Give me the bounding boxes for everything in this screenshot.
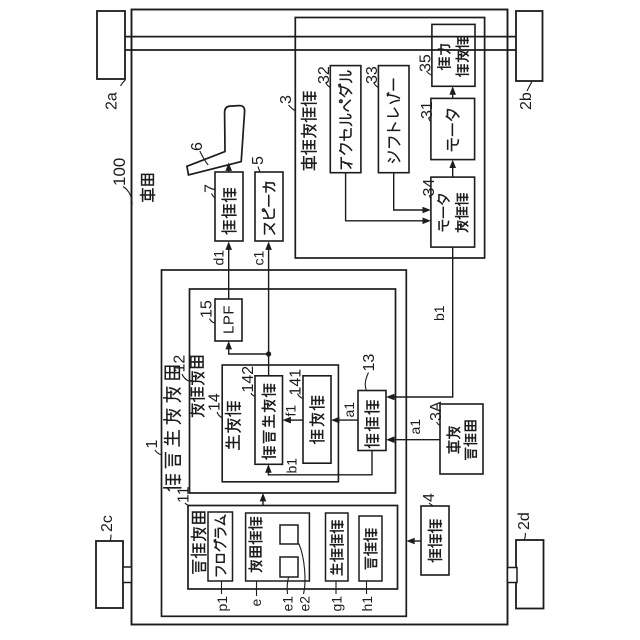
svg-text:3: 3: [278, 95, 295, 104]
svg-text:13: 13: [361, 354, 378, 372]
svg-text:15: 15: [199, 300, 216, 318]
svg-text:141: 141: [288, 369, 305, 396]
svg-text:12: 12: [172, 355, 189, 373]
svg-text:d1: d1: [211, 250, 227, 266]
svg-text:4: 4: [421, 493, 438, 502]
svg-text:142: 142: [240, 366, 257, 393]
svg-text:a1: a1: [341, 402, 357, 418]
svg-text:b1: b1: [431, 305, 447, 321]
svg-text:7: 7: [203, 184, 220, 193]
svg-text:a1: a1: [407, 419, 423, 435]
svg-text:34: 34: [421, 179, 438, 197]
svg-text:14: 14: [207, 393, 224, 411]
svg-text:e1: e1: [280, 596, 296, 612]
svg-text:2a: 2a: [104, 92, 121, 110]
svg-text:2c: 2c: [99, 515, 116, 532]
svg-text:c1: c1: [251, 251, 267, 266]
svg-text:100: 100: [110, 158, 129, 186]
svg-text:2b: 2b: [518, 92, 535, 110]
svg-text:g1: g1: [329, 596, 345, 612]
svg-text:LPF: LPF: [221, 305, 238, 334]
svg-text:e2: e2: [297, 596, 313, 612]
svg-text:3A: 3A: [428, 401, 445, 421]
svg-text:33: 33: [364, 66, 381, 84]
svg-text:31: 31: [419, 101, 436, 119]
svg-text:f1: f1: [283, 405, 299, 417]
svg-text:e: e: [248, 599, 264, 607]
svg-text:6: 6: [189, 142, 206, 151]
svg-text:b1: b1: [284, 458, 300, 474]
svg-text:32: 32: [316, 66, 333, 84]
svg-text:p1: p1: [214, 596, 230, 612]
svg-text:5: 5: [250, 156, 267, 165]
svg-text:h1: h1: [359, 596, 375, 612]
svg-text:2d: 2d: [516, 512, 533, 530]
svg-text:35: 35: [418, 54, 435, 72]
svg-text:1: 1: [144, 440, 161, 449]
svg-text:11: 11: [176, 486, 193, 503]
